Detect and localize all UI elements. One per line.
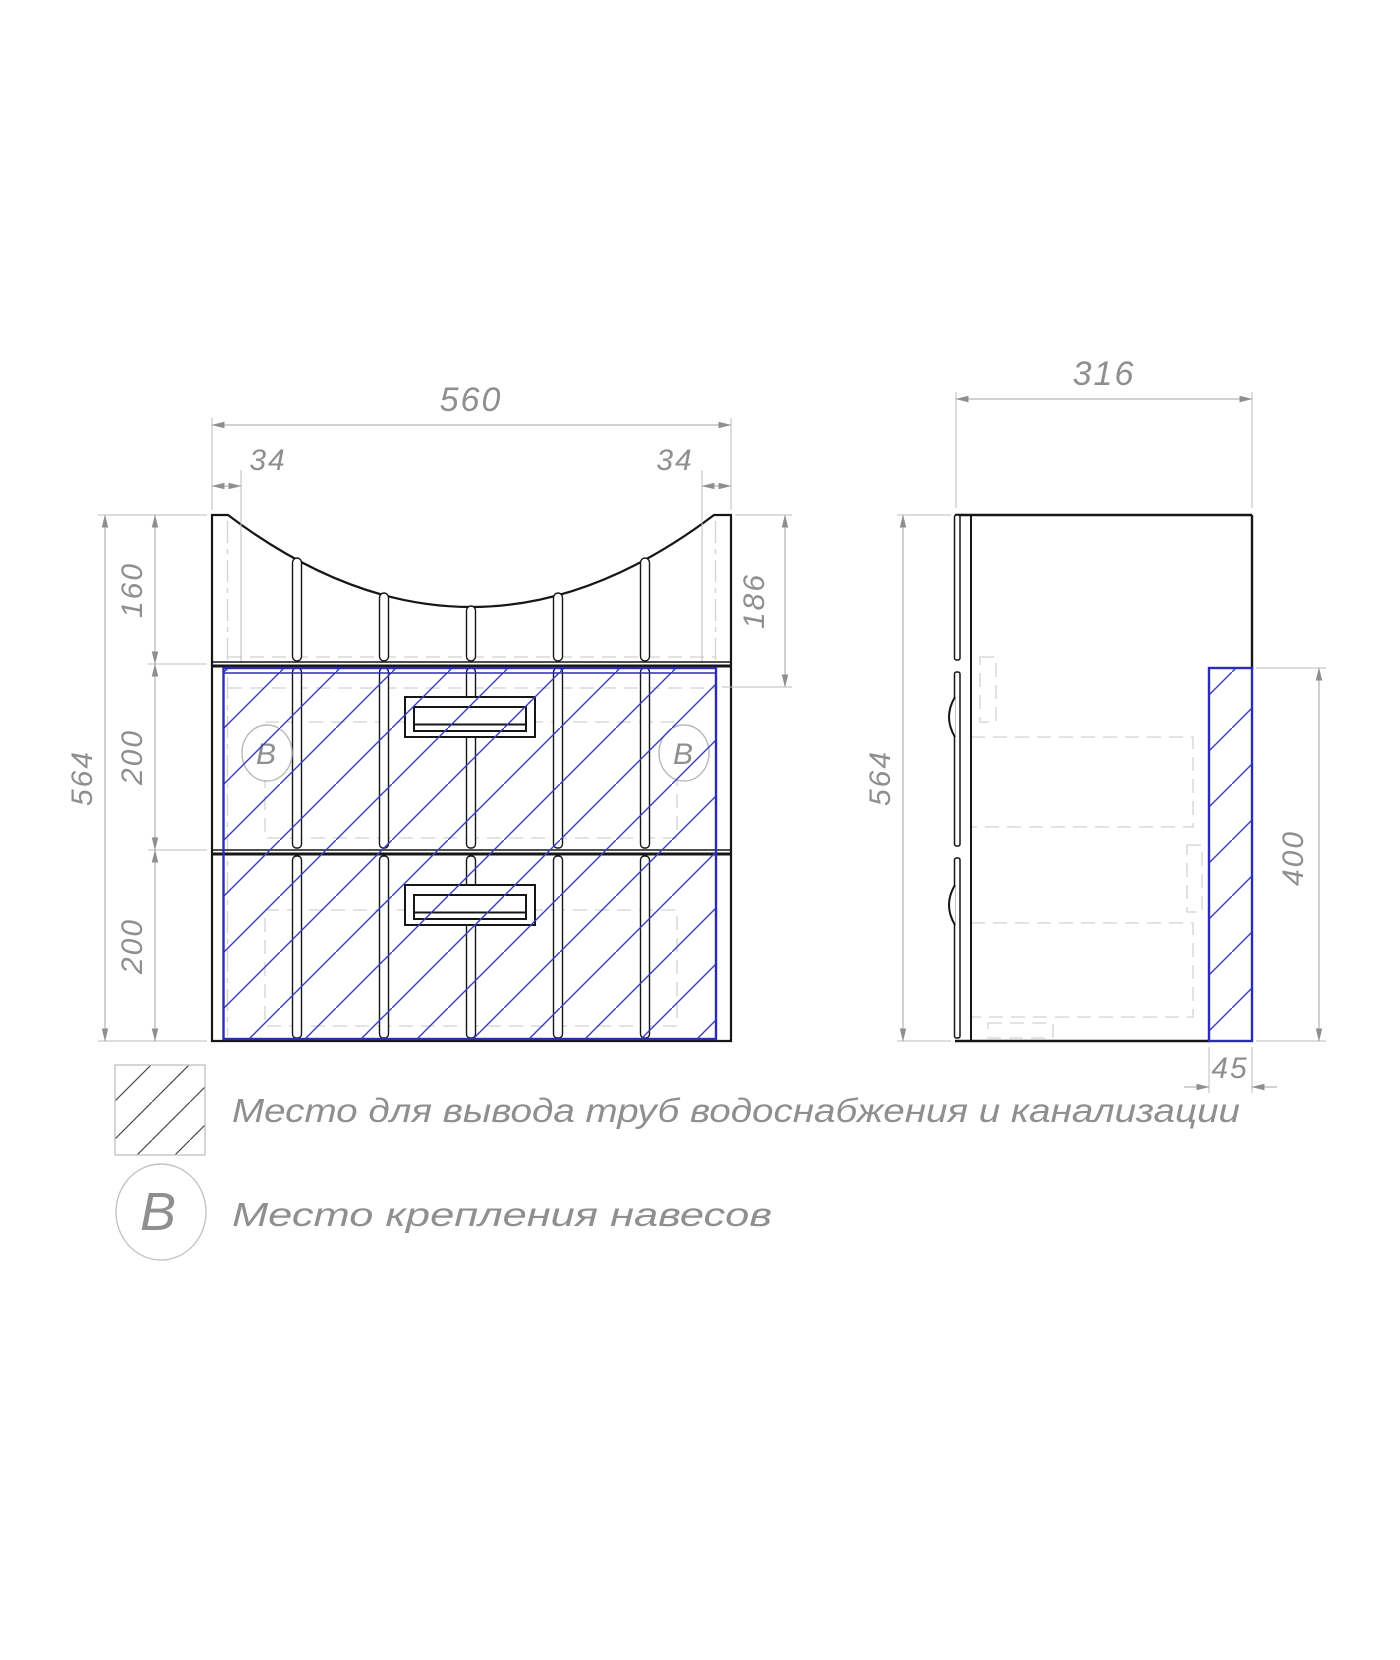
legend-pipe-zone-label: Место для вывода труб водоснабжения и ка… bbox=[232, 1092, 1240, 1129]
dim-side-height: 564 bbox=[864, 750, 897, 806]
dim-front-drawer-bottom: 200 bbox=[116, 918, 149, 975]
legend-mount-label: Место крепления навесов bbox=[232, 1196, 772, 1233]
side-handle2-profile bbox=[949, 885, 955, 925]
dim-front-offset-left: 34 bbox=[249, 444, 286, 477]
technical-drawing: B B 560 34 34 160 200 200 564 bbox=[0, 0, 1400, 1660]
side-hidden-bracket-mid bbox=[1187, 845, 1202, 912]
front-view: B B 560 34 34 160 200 200 564 bbox=[66, 381, 792, 1041]
dim-front-drawer-top: 200 bbox=[116, 729, 149, 786]
dim-side-depth: 316 bbox=[1073, 355, 1136, 393]
legend-hatch-swatch bbox=[115, 1065, 205, 1155]
dim-side-pipe-depth: 45 bbox=[1211, 1052, 1248, 1085]
dim-front-recess: 186 bbox=[738, 573, 771, 629]
side-pipe-zone-hatch bbox=[1209, 668, 1252, 1041]
dim-front-apron: 160 bbox=[116, 562, 149, 618]
dim-front-height: 564 bbox=[66, 750, 99, 806]
side-apron-panel bbox=[955, 515, 961, 660]
side-hidden-drawerbox2 bbox=[971, 923, 1193, 1017]
side-hidden-plinth bbox=[988, 1023, 1053, 1038]
side-handle1-profile bbox=[949, 697, 955, 737]
side-drawer2-front bbox=[955, 858, 961, 1038]
dim-front-width: 560 bbox=[440, 381, 503, 419]
side-hidden-drawerbox1 bbox=[971, 737, 1193, 827]
legend: Место для вывода труб водоснабжения и ка… bbox=[115, 1065, 1240, 1260]
dim-side-pipe-height: 400 bbox=[1277, 830, 1310, 886]
dim-front-offset-right: 34 bbox=[656, 444, 693, 477]
drawing-page: B B 560 34 34 160 200 200 564 bbox=[0, 0, 1400, 1660]
front-pipe-zone-hatch bbox=[224, 668, 717, 1039]
legend-mount-symbol: B bbox=[140, 1182, 178, 1242]
side-view: 316 564 400 45 bbox=[864, 355, 1326, 1093]
side-hidden-bracket-top bbox=[980, 657, 996, 722]
